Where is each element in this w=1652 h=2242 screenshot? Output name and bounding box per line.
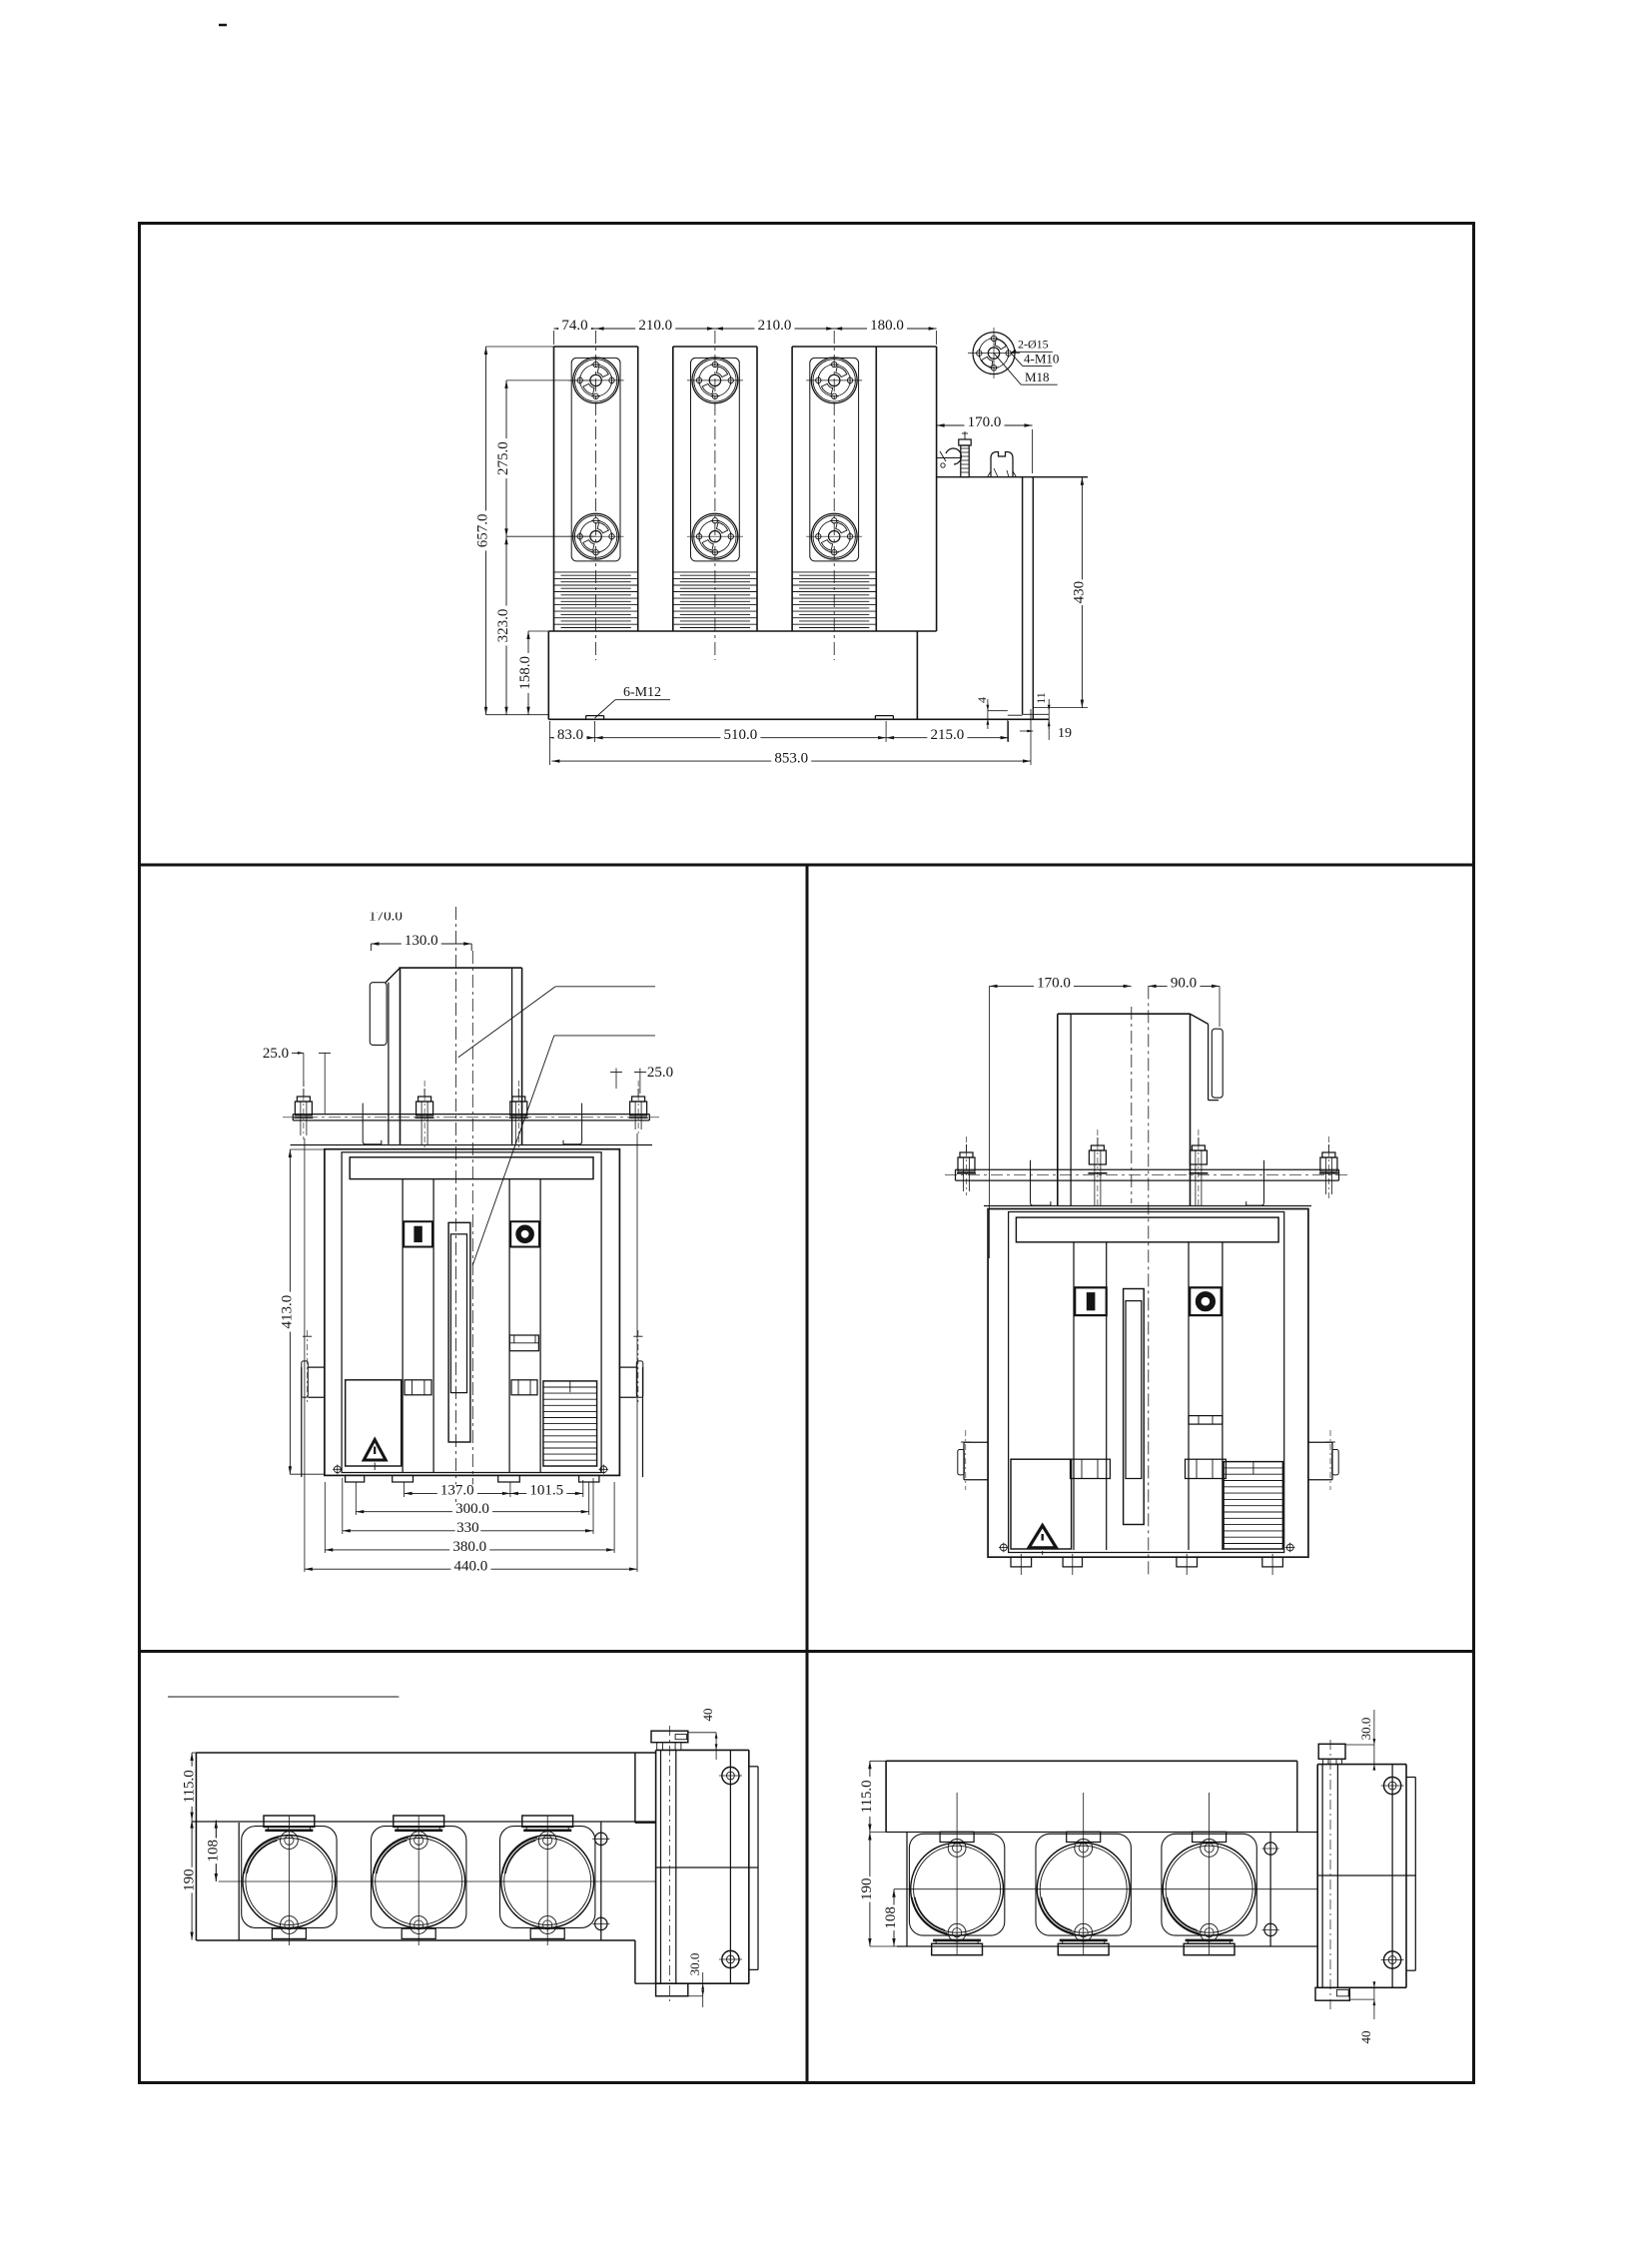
svg-text:115.0: 115.0 [859,1780,875,1813]
svg-text:6-M12: 6-M12 [623,685,661,700]
svg-text:74.0: 74.0 [561,318,587,334]
svg-text:170.0: 170.0 [1037,976,1071,992]
svg-text:30.0: 30.0 [1358,1718,1373,1741]
svg-text:30.0: 30.0 [687,1953,702,1976]
svg-text:190: 190 [181,1868,197,1891]
svg-text:11: 11 [1034,692,1048,704]
svg-text:430: 430 [1072,581,1088,604]
svg-text:275.0: 275.0 [495,441,511,475]
svg-text:440.0: 440.0 [454,1558,488,1574]
svg-text:4-M10: 4-M10 [1024,352,1059,367]
svg-text:40: 40 [700,1709,715,1722]
svg-text:180.0: 180.0 [870,318,904,334]
svg-text:108: 108 [206,1840,222,1863]
svg-text:137.0: 137.0 [440,1483,474,1499]
svg-text:190: 190 [859,1878,875,1901]
svg-text:83.0: 83.0 [557,727,583,743]
svg-text:510.0: 510.0 [724,727,758,743]
svg-text:170.0: 170.0 [968,414,1002,430]
svg-text:330: 330 [456,1520,479,1536]
svg-text:2-Ø15: 2-Ø15 [1018,338,1049,352]
svg-text:101.5: 101.5 [529,1483,563,1499]
svg-text:210.0: 210.0 [758,318,792,334]
svg-text:90.0: 90.0 [1171,976,1197,992]
svg-text:4: 4 [975,697,989,703]
svg-text:380.0: 380.0 [452,1539,486,1555]
svg-text:210.0: 210.0 [638,318,672,334]
svg-text:300.0: 300.0 [455,1501,489,1517]
svg-text:158.0: 158.0 [517,656,533,690]
svg-text:215.0: 215.0 [931,727,965,743]
svg-text:25.0: 25.0 [263,1046,289,1062]
svg-text:657.0: 657.0 [475,514,491,548]
svg-text:853.0: 853.0 [774,750,808,766]
svg-text:108: 108 [883,1906,899,1929]
svg-text:413.0: 413.0 [280,1295,296,1329]
svg-text:M18: M18 [1025,370,1050,384]
svg-text:19: 19 [1058,726,1072,741]
svg-text:40: 40 [1358,2031,1373,2044]
svg-text:323.0: 323.0 [495,609,511,643]
svg-text:130.0: 130.0 [405,933,438,949]
svg-text:25.0: 25.0 [647,1065,673,1081]
svg-text:115.0: 115.0 [181,1770,197,1803]
